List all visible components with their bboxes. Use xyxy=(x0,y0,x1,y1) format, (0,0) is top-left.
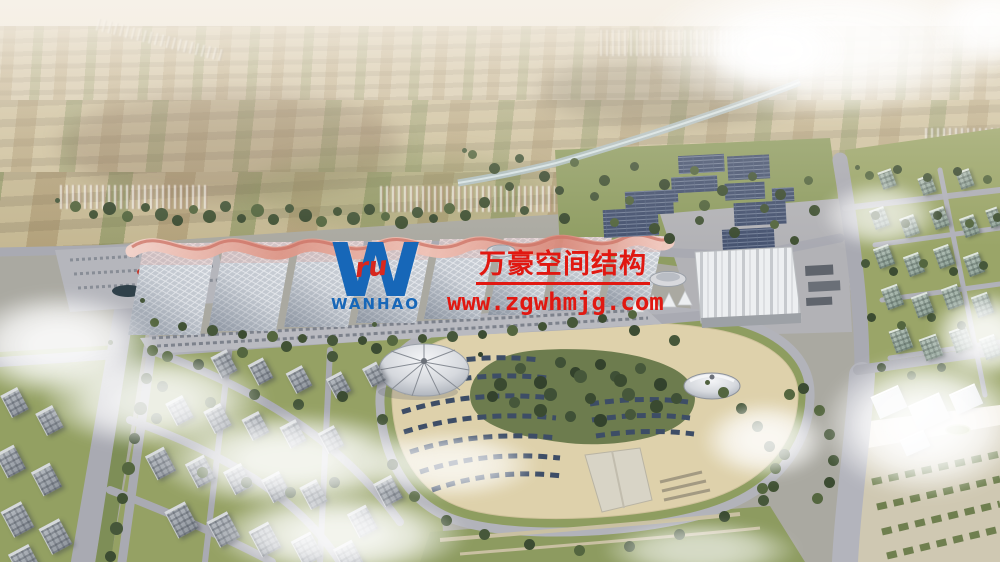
aerial-architectural-rendering: W ru WANHAO 万豪空间结构 www.zgwhmjg.com xyxy=(0,0,1000,562)
tree-belt xyxy=(55,198,60,203)
cone-dome xyxy=(684,373,740,399)
tree-cluster xyxy=(462,148,467,153)
cloud xyxy=(700,10,850,90)
cloud xyxy=(360,430,540,500)
cloud xyxy=(820,180,940,250)
terrace-trees xyxy=(705,380,710,385)
east-district-trees xyxy=(855,165,860,170)
park-ring-trees xyxy=(372,322,377,327)
avenue-trees xyxy=(140,298,145,303)
tent-dome xyxy=(378,344,469,400)
cloud xyxy=(700,400,830,480)
park-mound-trees xyxy=(478,352,483,357)
